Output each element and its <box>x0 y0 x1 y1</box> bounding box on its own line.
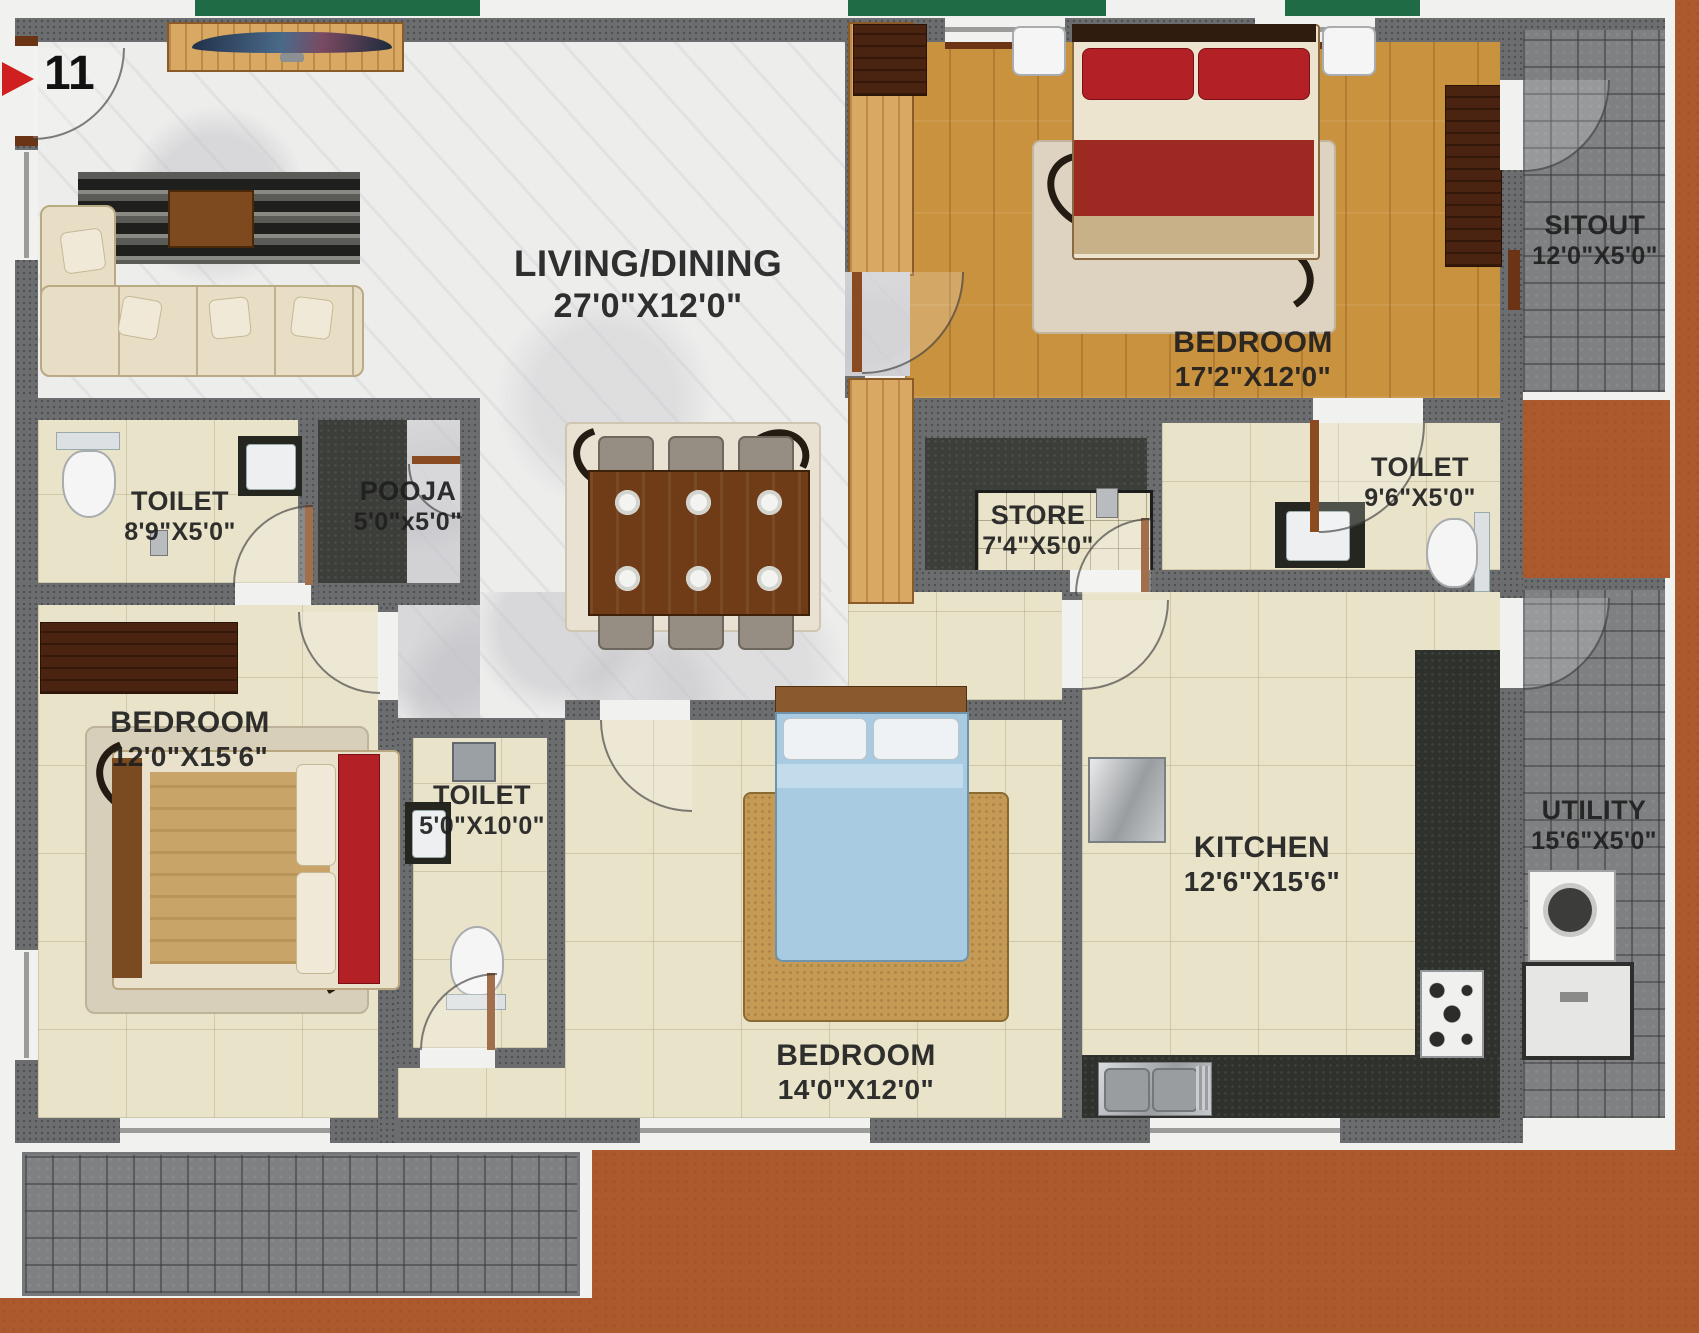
entrance-arrow-icon <box>2 62 34 96</box>
door-opening <box>1313 398 1423 423</box>
bed-pillow <box>873 718 959 760</box>
sink-basin <box>1104 1068 1150 1112</box>
wall <box>395 718 565 738</box>
washing-machine-door <box>1548 888 1592 932</box>
bedroom-top-label: BEDROOM 17'2"X12'0" <box>1173 325 1332 393</box>
plate <box>757 566 782 591</box>
utility-cabinet <box>1522 962 1634 1060</box>
nightstand <box>1012 26 1066 76</box>
bedroom-middle-label: BEDROOM 14'0"X12'0" <box>776 1038 935 1106</box>
bed-headboard <box>1072 24 1316 42</box>
sitout-label: SITOUT 12'0"X5'0" <box>1532 210 1658 271</box>
television <box>192 32 392 53</box>
toilet-fixture <box>62 450 116 518</box>
window-glass <box>24 952 29 1058</box>
sink-drainboard <box>1196 1066 1210 1110</box>
toilet-fixture <box>1426 518 1478 588</box>
bed-foot <box>1074 216 1314 254</box>
door-opening <box>378 612 398 700</box>
bed-pillow <box>296 872 336 974</box>
plate <box>757 490 782 515</box>
sofa-pillow <box>59 227 106 274</box>
toilet-lobby-floor <box>398 1068 565 1118</box>
planter-strip <box>1285 0 1420 16</box>
wall <box>15 398 480 420</box>
wardrobe <box>853 24 927 96</box>
background-right <box>1675 0 1699 1333</box>
planter-strip <box>848 0 1106 16</box>
door-opening <box>1062 600 1082 688</box>
door-leaf <box>412 456 460 464</box>
unit-number: 11 <box>44 46 95 101</box>
window-glass <box>640 1128 870 1133</box>
door-opening <box>600 700 690 720</box>
kitchen-passage-floor <box>848 592 1062 700</box>
patio-floor <box>22 1152 580 1296</box>
door-opening <box>420 1048 495 1068</box>
pooja-label: POOJA 5'0"x5'0" <box>354 476 463 537</box>
plate <box>615 566 640 591</box>
wall <box>1523 18 1665 30</box>
toilet-tank <box>56 432 120 450</box>
wall-accent <box>1508 250 1520 310</box>
shower-head <box>452 742 496 782</box>
toilet-right-label: TOILET 9'6"X5'0" <box>1364 452 1476 513</box>
gas-stove <box>1420 970 1484 1058</box>
tv-stand <box>280 53 304 62</box>
door-frame <box>15 36 38 46</box>
window-glass <box>1150 1128 1340 1133</box>
living-dining-label: LIVING/DINING 27'0"X12'0" <box>514 242 782 326</box>
door-opening <box>1500 598 1523 688</box>
background-bottom-right <box>592 1150 1699 1333</box>
plate <box>686 566 711 591</box>
floor-plan: LIVING/DINING 27'0"X12'0" BEDROOM 17'2"X… <box>0 0 1699 1333</box>
nightstand <box>1322 26 1376 76</box>
wall <box>848 570 1523 592</box>
toilet-middle-label: TOILET 5'0"X10'0" <box>419 780 545 841</box>
toilet-left-label: TOILET 8'9"X5'0" <box>124 486 236 547</box>
refrigerator <box>1088 757 1166 843</box>
plate <box>686 490 711 515</box>
washbasin <box>246 444 296 490</box>
cabinet-handle <box>1560 992 1588 1002</box>
door-opening <box>235 583 311 605</box>
sink-basin <box>1152 1068 1198 1112</box>
wall <box>460 398 480 605</box>
door-leaf <box>1310 420 1319 532</box>
kitchen-label: KITCHEN 12'6"X15'6" <box>1184 830 1340 898</box>
wall <box>547 718 565 1068</box>
bed-pillow <box>1198 48 1310 100</box>
planter-strip <box>195 0 480 16</box>
wardrobe-column <box>848 378 914 604</box>
bed-footboard <box>112 758 142 978</box>
media-cabinet <box>168 190 254 248</box>
bed-blanket <box>1074 140 1314 216</box>
plate <box>615 490 640 515</box>
utility-label: UTILITY 15'6"X5'0" <box>1531 795 1657 856</box>
sofa-pillow <box>117 295 163 341</box>
store-label: STORE 7'4"X5'0" <box>982 500 1094 561</box>
door-opening <box>1500 80 1523 170</box>
bed-runner <box>338 754 380 984</box>
bed-headboard <box>775 686 967 714</box>
background-mid-right-block <box>1512 400 1670 578</box>
door-leaf <box>852 272 862 372</box>
bed-pillow <box>783 718 867 760</box>
window-glass <box>120 1128 330 1133</box>
wall <box>1523 578 1665 590</box>
bed-pillow <box>296 764 336 866</box>
window-glass <box>24 152 29 258</box>
bedroom-left-label: BEDROOM 12'0"X15'6" <box>110 705 269 773</box>
sofa-pillow <box>208 296 252 340</box>
side-cabinet <box>1445 85 1502 267</box>
wardrobe <box>40 622 238 694</box>
health-faucet <box>1096 488 1118 518</box>
bed-sheet-fold <box>777 764 963 788</box>
sofa-pillow <box>290 296 335 341</box>
bed-pillow <box>1082 48 1194 100</box>
